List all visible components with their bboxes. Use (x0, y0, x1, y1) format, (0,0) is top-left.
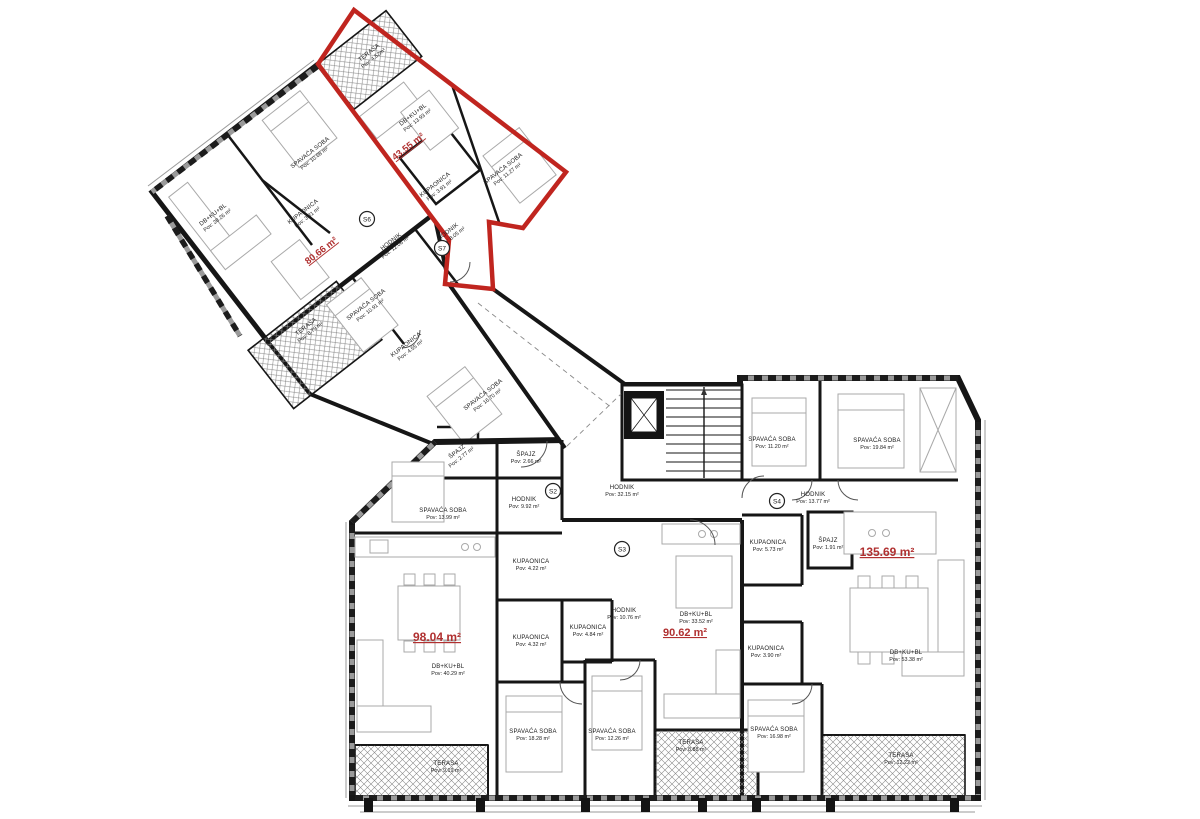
room-label-terasa-919: TERASAPov: 9.19 m² (431, 761, 462, 774)
room-label-hodnik-992: HODNIKPov: 9.92 m² (509, 497, 540, 510)
room-label-hodnik-3215: HODNIKPov: 32.15 m² (605, 485, 639, 498)
unit-marker-s7: S7 (435, 241, 450, 256)
room-label-hodnik-1076: HODNIKPov: 10.76 m² (607, 608, 641, 621)
floorplan-page: TERASAPov: 4.52m²DB+KU+BLPov: 13.93 m²SP… (0, 0, 1200, 819)
terrace-919-area (355, 745, 488, 796)
svg-text:S4: S4 (773, 498, 781, 505)
room-label-kupaonica-484: KUPAONICAPov: 4.84 m² (570, 625, 607, 638)
svg-text:S2: S2 (549, 488, 557, 495)
svg-text:S3: S3 (618, 546, 626, 553)
unit-marker-s6: S6 (360, 212, 375, 227)
svg-text:S6: S6 (363, 216, 371, 223)
room-label-kupaonica-432: KUPAONICAPov: 4.32 m² (513, 635, 550, 648)
unit-marker-s3: S3 (615, 542, 630, 557)
floor-plan-canvas: TERASAPov: 4.52m²DB+KU+BLPov: 13.93 m²SP… (0, 0, 1200, 819)
room-label-hodnik-1377: HODNIKPov: 13.77 m² (796, 492, 830, 505)
terrace-888-area (655, 730, 758, 796)
unit-marker-s2: S2 (546, 484, 561, 499)
room-label-db-9062: DB+KU+BLPov: 33.52 m² (679, 612, 713, 625)
unit-marker-s4: S4 (770, 494, 785, 509)
room-label-db-13569: DB+KU+BLPov: 53.38 m² (889, 650, 923, 663)
room-label-kupaonica-573: KUPAONICAPov: 5.73 m² (750, 540, 787, 553)
room-label-terasa-1222: TERASAPov: 12.22 m² (884, 753, 918, 766)
unit-area-13569: 135.69 m² (860, 545, 915, 559)
room-label-kupaonica-390: KUPAONICAPov: 3.90 m² (748, 646, 785, 659)
room-label-kupaonica-422: KUPAONICAPov: 4.22 m² (513, 559, 550, 572)
svg-text:S7: S7 (438, 245, 446, 252)
room-label-db-9804: DB+KU+BLPov: 40.29 m² (431, 664, 465, 677)
unit-area-9804: 98.04 m² (413, 630, 461, 644)
stairwell (622, 385, 742, 480)
room-label-terasa-888: TERASAPov: 8.88 m² (676, 740, 707, 753)
unit-area-9062: 90.62 m² (663, 627, 707, 639)
